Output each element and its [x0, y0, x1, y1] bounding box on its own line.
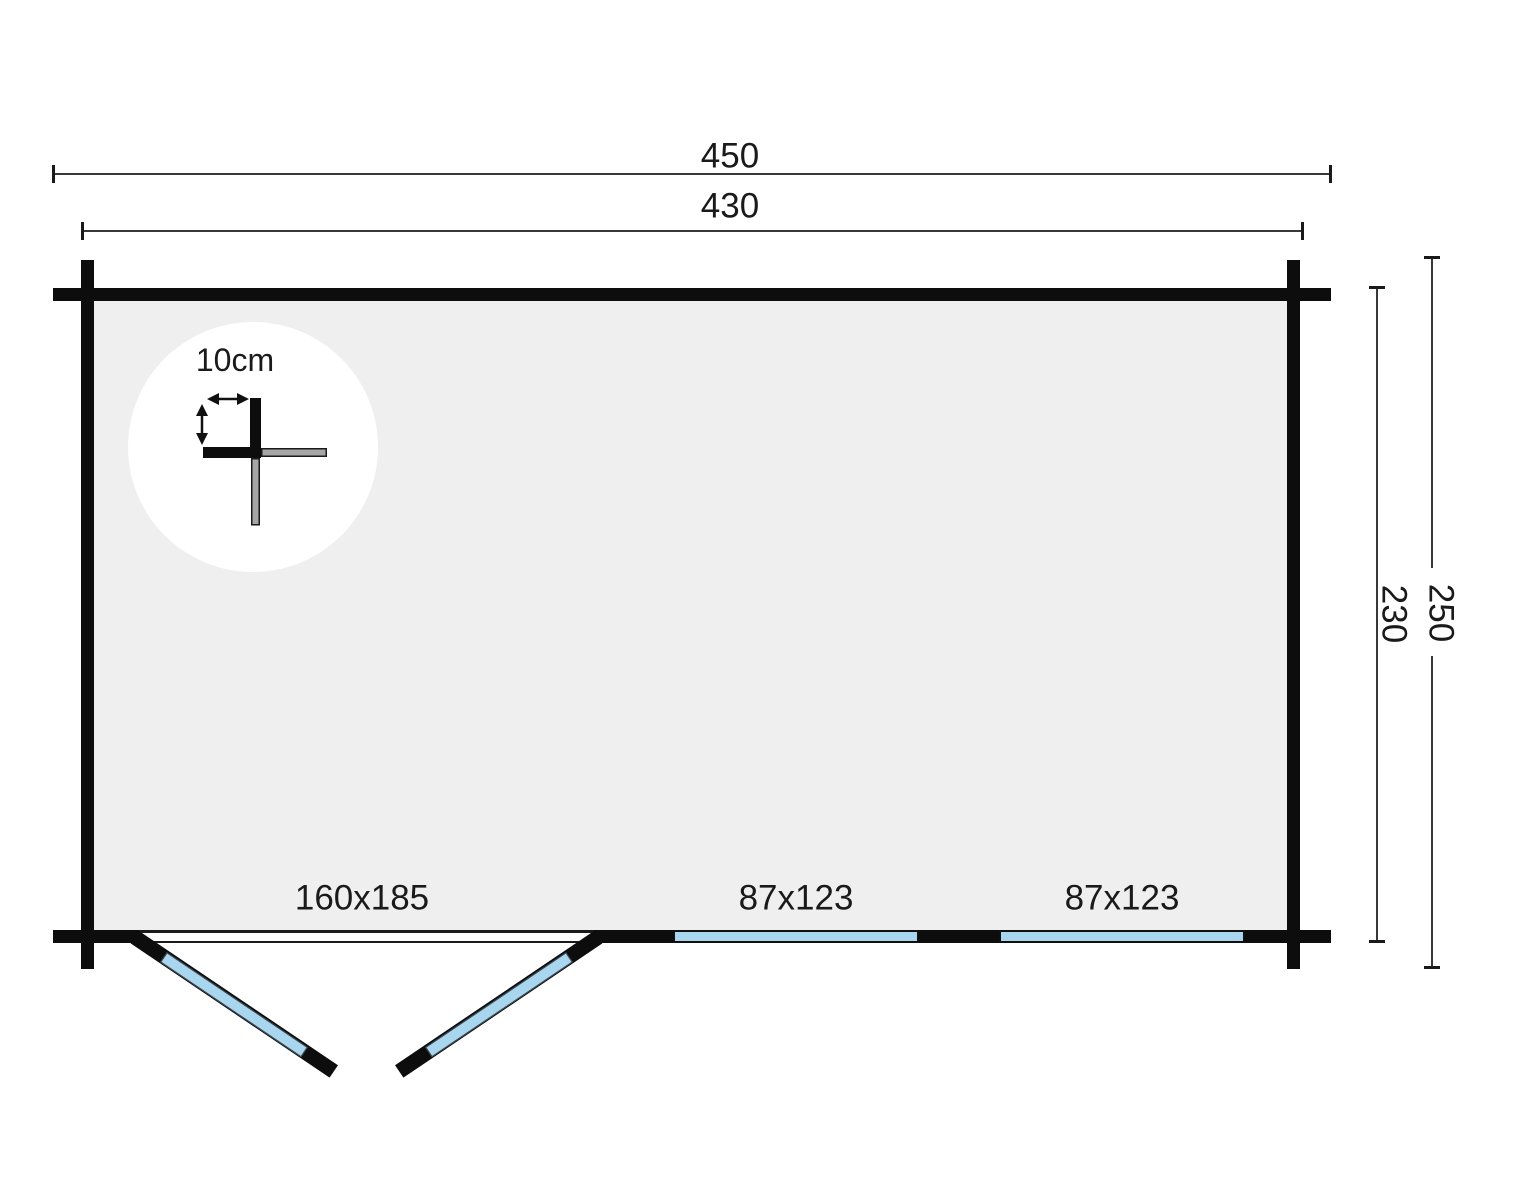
arrowhead-left	[207, 393, 219, 405]
dim-tick	[1329, 165, 1332, 183]
dim-tick	[81, 222, 84, 240]
outer-width-label: 450	[701, 139, 759, 174]
dim-line-outer-width	[54, 173, 1331, 175]
dim-tick	[52, 165, 55, 183]
detail-log-horizontal-gray	[262, 449, 327, 457]
dim-line-outer-depth	[1431, 656, 1433, 968]
wall-right	[1287, 260, 1300, 969]
door-threshold	[139, 930, 594, 943]
dim-line-inner-width	[83, 230, 1303, 232]
corner-detail-circle: 10cm	[128, 322, 378, 572]
door-leaf-right	[395, 931, 602, 1078]
dim-tick	[1369, 940, 1385, 943]
wall-left	[81, 260, 94, 969]
floor-plan-canvas: 450 430 230 250 160x185 87x123 87x123 10…	[0, 0, 1530, 1188]
door-leaf-left	[131, 931, 338, 1078]
window-left	[673, 930, 919, 943]
dim-line-outer-depth	[1431, 258, 1433, 568]
dim-tick	[1424, 966, 1440, 969]
door-leaf-left-glass	[160, 952, 308, 1057]
wall-top	[53, 288, 1331, 301]
detail-log-horizontal-black	[203, 447, 261, 458]
window-right-size-label: 87x123	[1065, 881, 1180, 916]
detail-log-vertical-gray	[252, 459, 260, 525]
arrowhead-right	[237, 393, 249, 405]
inner-depth-label: 230	[1377, 585, 1412, 643]
corner-detail-label: 10cm	[196, 344, 274, 376]
arrowhead-down	[196, 433, 208, 445]
arrowhead-up	[196, 404, 208, 416]
window-right	[999, 930, 1245, 943]
outer-depth-label: 250	[1424, 584, 1459, 642]
dim-tick	[1424, 256, 1440, 259]
window-left-size-label: 87x123	[739, 881, 854, 916]
inner-width-label: 430	[701, 189, 759, 224]
door-size-label: 160x185	[295, 881, 429, 916]
dim-tick	[1369, 286, 1385, 289]
door-leaf-right-glass	[425, 952, 573, 1057]
dim-tick	[1301, 222, 1304, 240]
